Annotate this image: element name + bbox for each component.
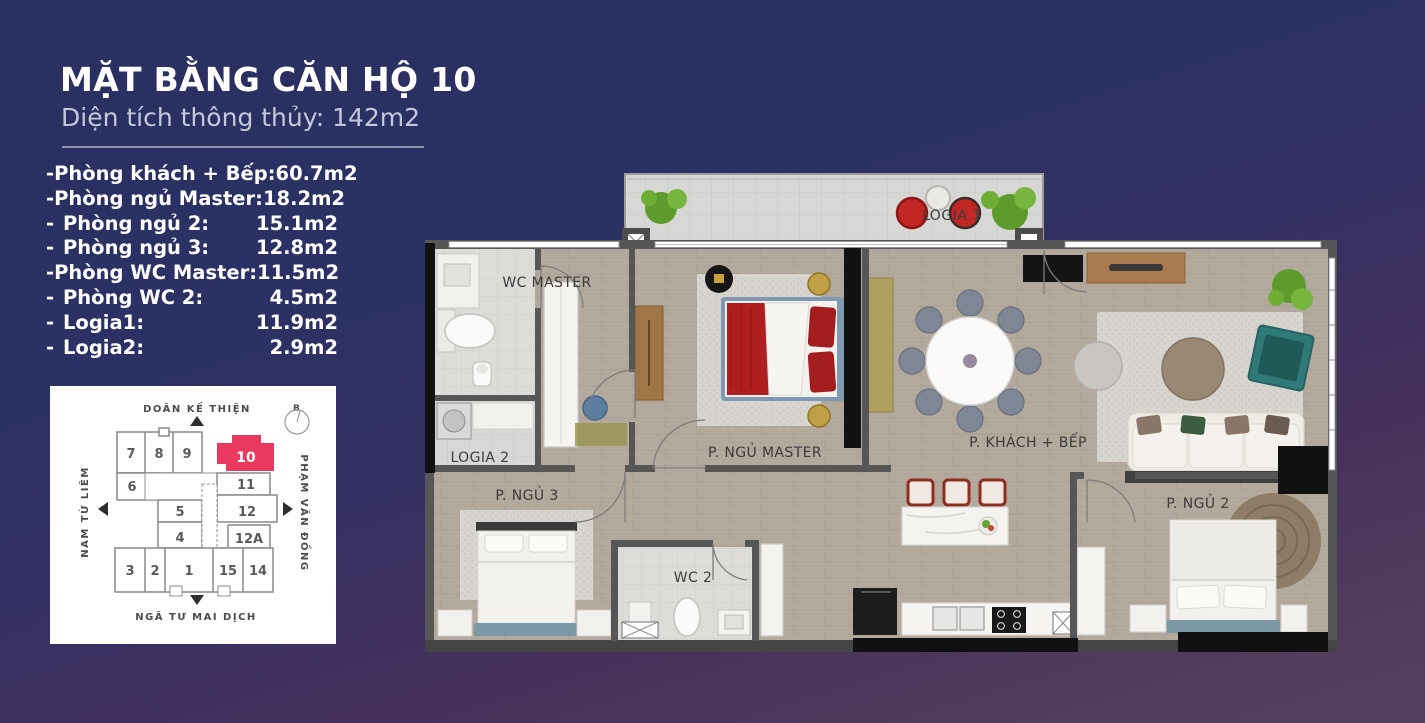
barstool-icon	[980, 480, 1005, 505]
room-label: Logia1:	[63, 311, 144, 336]
nightstand-icon	[808, 405, 830, 427]
ottoman-icon	[1248, 325, 1314, 391]
floor-plan: LOGIA 1	[425, 170, 1337, 660]
room-label-ngu-master: P. NGỦ MASTER	[708, 442, 822, 461]
list-item: -Phòng khách + Bếp:60.7m2	[46, 162, 338, 187]
pillow	[1224, 415, 1250, 435]
barstool-icon	[908, 480, 933, 505]
room-area: 4.5m2	[270, 286, 338, 311]
street-label-bottom: NGÃ TƯ MAI DỊCH	[135, 610, 257, 623]
room-area: 18.2m2	[263, 187, 345, 212]
page-title: MẶT BẰNG CĂN HỘ 10	[60, 60, 477, 99]
room-label-logia2: LOGIA 2	[450, 450, 509, 466]
nightstand-icon	[577, 610, 611, 636]
unit-number: 2	[150, 564, 159, 579]
room-label-wc2: WC 2	[674, 570, 713, 586]
unit-number: 3	[125, 564, 134, 579]
pillow	[1136, 414, 1162, 435]
bullet: -	[46, 236, 63, 261]
room-area: 11.5m2	[257, 261, 339, 286]
footboard	[1166, 620, 1280, 633]
toilet-icon	[674, 598, 700, 636]
arrow-right-icon	[283, 502, 293, 516]
room-area-list: -Phòng khách + Bếp:60.7m2 -Phòng ngủ Mas…	[46, 162, 338, 360]
room-label: Phòng ngủ 2:	[63, 212, 209, 237]
site-map-svg: DOÃN KẾ THIỆN NGÃ TƯ MAI DỊCH NAM TỪ LIÊ…	[50, 386, 336, 644]
room-area: 15.1m2	[256, 212, 338, 237]
room-bedroom-3	[438, 510, 611, 636]
red-duvet	[727, 303, 769, 395]
unit-number: 11	[237, 478, 255, 493]
bathtub-icon	[445, 314, 495, 348]
sofa-icon	[1128, 413, 1304, 471]
bench	[865, 278, 893, 412]
unit-number: 12A	[235, 532, 263, 547]
room-label: Phòng khách + Bếp:	[54, 162, 275, 187]
nightstand-icon	[438, 610, 472, 636]
unit-number: 15	[219, 564, 237, 579]
pillow	[1176, 585, 1219, 609]
counter	[902, 603, 1070, 635]
room-label: Phòng WC Master:	[54, 261, 257, 286]
bullet: -	[46, 286, 63, 311]
unit-number: 14	[249, 564, 267, 579]
footboard	[474, 623, 579, 636]
sink-icon	[933, 607, 957, 630]
nightstand-icon	[808, 273, 830, 295]
unit-number: 12	[238, 505, 256, 520]
wardrobe	[1077, 547, 1105, 635]
unit-number: 6	[127, 480, 136, 495]
headboard	[476, 522, 577, 531]
room-label: Logia2:	[63, 336, 144, 361]
room-area: 11.9m2	[256, 311, 338, 336]
nightstand-icon	[1281, 605, 1307, 632]
room-label: Phòng ngủ 3:	[63, 236, 209, 261]
duvet	[1172, 522, 1274, 580]
list-item: -Logia2:2.9m2	[46, 336, 338, 361]
unit-number: 5	[175, 505, 184, 520]
room-area: 12.8m2	[256, 236, 338, 261]
list-item: -Phòng ngủ 2:15.1m2	[46, 212, 338, 237]
room-area: 60.7m2	[276, 162, 358, 187]
room-label-logia1: LOGIA 1	[922, 208, 982, 224]
pillow	[529, 535, 567, 552]
unit-number: 9	[182, 447, 191, 462]
cabinet	[761, 544, 783, 636]
page-subtitle: Diện tích thông thủy: 142m2	[61, 103, 420, 132]
list-item: -Logia1:11.9m2	[46, 311, 338, 336]
room-label-ngu3: P. NGỦ 3	[495, 485, 558, 504]
arrow-left-icon	[98, 502, 108, 516]
list-item: -Phòng ngủ 3:12.8m2	[46, 236, 338, 261]
bullet: -	[46, 212, 63, 237]
unit-number: 8	[154, 447, 163, 462]
unit-number: 10	[236, 450, 256, 466]
pillow	[485, 535, 523, 552]
unit-10-highlight: 10	[217, 435, 274, 471]
unit-number: 1	[184, 564, 193, 579]
room-label-khach-bep: P. KHÁCH + BẾP	[969, 432, 1087, 451]
bullet: -	[46, 162, 54, 187]
street-label-left: NAM TỪ LIÊM	[78, 466, 91, 558]
small-rug	[575, 423, 627, 446]
barstool-icon	[944, 480, 969, 505]
room-label-ngu2: P. NGỦ 2	[1166, 493, 1229, 512]
bullet: -	[46, 187, 54, 212]
sink-icon	[960, 607, 984, 630]
bullet: -	[46, 336, 63, 361]
compass-icon: B	[285, 404, 309, 434]
bullet: -	[46, 311, 63, 336]
list-item: -Phòng WC Master:11.5m2	[46, 261, 338, 286]
nightstand-icon	[1130, 605, 1166, 632]
room-area: 2.9m2	[270, 336, 338, 361]
coffee-table-icon	[1162, 338, 1224, 400]
pillow	[1223, 585, 1266, 609]
room-label: Phòng ngủ Master:	[54, 187, 263, 212]
street-label-top: DOÃN KẾ THIỆN	[143, 400, 251, 415]
site-map: DOÃN KẾ THIỆN NGÃ TƯ MAI DỊCH NAM TỪ LIÊ…	[50, 386, 336, 644]
pouf-icon	[1074, 342, 1122, 390]
unit-number: 4	[175, 531, 184, 546]
divider-line	[62, 146, 424, 148]
cabinet-dark	[1023, 255, 1083, 282]
dining-set	[899, 290, 1041, 432]
pillow	[1180, 415, 1206, 435]
unit-number: 7	[126, 447, 135, 462]
list-item: -Phòng ngủ Master:18.2m2	[46, 187, 338, 212]
room-label-wc-master: WC MASTER	[502, 275, 591, 291]
fridge-icon	[853, 588, 897, 635]
pillow	[1264, 414, 1290, 435]
bullet: -	[46, 261, 54, 286]
cooktop-icon	[992, 607, 1026, 633]
floor-plan-svg: LOGIA 1	[425, 170, 1337, 660]
tv-icon	[1109, 264, 1163, 271]
room-label: Phòng WC 2:	[63, 286, 203, 311]
page: MẶT BẰNG CĂN HỘ 10 Diện tích thông thủy:…	[0, 0, 1425, 723]
list-item: -Phòng WC 2:4.5m2	[46, 286, 338, 311]
pillow	[808, 351, 837, 393]
pillow	[808, 306, 837, 348]
arrow-up-icon	[190, 416, 204, 426]
comforter	[765, 303, 809, 395]
street-label-right: PHẠM VĂN ĐỒNG	[298, 454, 313, 571]
arrow-down-icon	[190, 595, 204, 605]
compass-letter: B	[293, 404, 300, 414]
